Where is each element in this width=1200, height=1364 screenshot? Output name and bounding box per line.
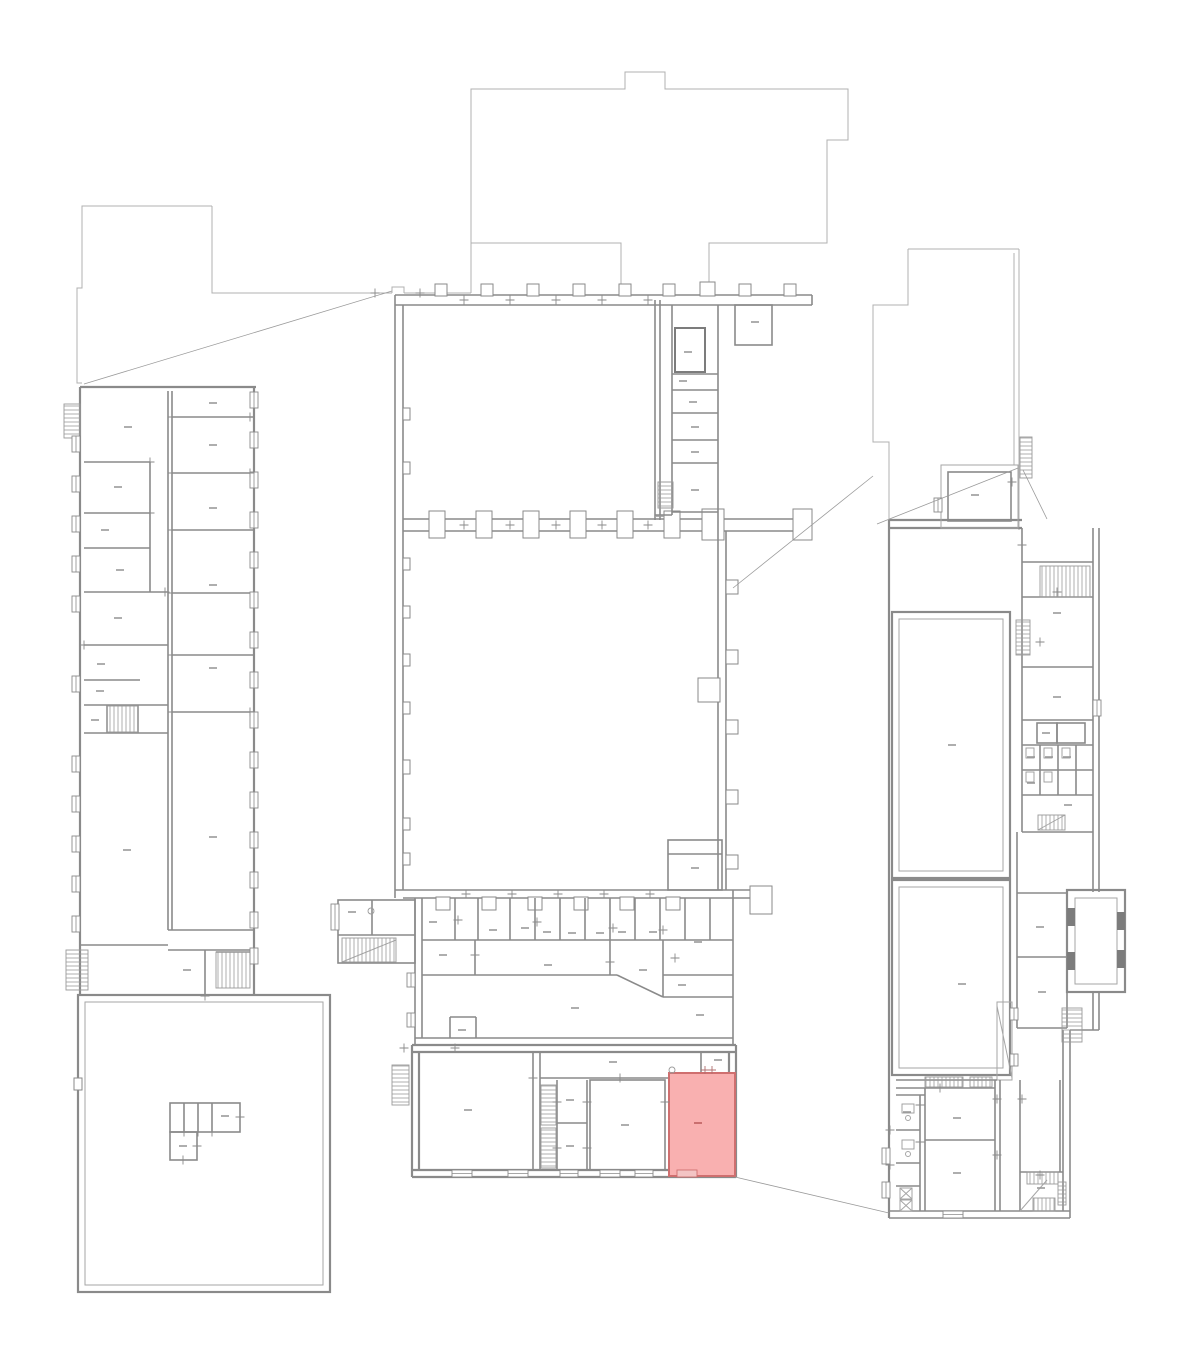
room-label-mark xyxy=(1037,1187,1045,1189)
door-tick xyxy=(168,413,177,422)
room-label-mark xyxy=(221,1115,229,1117)
bottom-building-stair-column xyxy=(557,1080,587,1170)
top-building-outline xyxy=(471,72,848,293)
door-tick xyxy=(180,1128,189,1137)
pier-mark xyxy=(1067,952,1075,970)
detail-room-outer xyxy=(941,465,1018,528)
room-label-mark xyxy=(101,529,109,531)
room-label-mark xyxy=(694,941,702,943)
door-tick xyxy=(168,526,177,535)
room-label-mark xyxy=(116,569,124,571)
room-label-mark xyxy=(691,451,699,453)
room-label-mark xyxy=(571,1007,579,1009)
door-tick xyxy=(600,890,609,899)
door-tick xyxy=(462,890,471,899)
door-tick xyxy=(529,1074,538,1083)
stair-hatch xyxy=(342,938,396,962)
room-label-mark xyxy=(544,964,552,966)
room-label-mark xyxy=(696,1014,704,1016)
door-tick xyxy=(193,1142,202,1151)
room-label-mark xyxy=(1064,804,1072,806)
room-label-mark xyxy=(429,921,437,923)
room-label-mark xyxy=(209,444,217,446)
room-label-mark xyxy=(521,927,529,929)
room-label-mark xyxy=(1036,926,1044,928)
door-tick xyxy=(400,1044,409,1053)
right-big-room-2-outer xyxy=(892,880,1010,1075)
hall-east-pilasters xyxy=(726,580,738,869)
door-tick xyxy=(916,1138,925,1147)
right-wing-small-room-b xyxy=(1057,723,1085,743)
leader-line xyxy=(1023,470,1047,519)
room-label-mark xyxy=(656,515,664,517)
door-circles xyxy=(368,908,675,1073)
door-tick xyxy=(208,1128,217,1137)
door-tick xyxy=(146,458,155,467)
right-wing-lower-column-walls xyxy=(1017,832,1067,1028)
central-building xyxy=(338,282,812,1045)
room-label-mark xyxy=(1038,991,1046,993)
door-tick xyxy=(616,1074,625,1083)
stair-hatch xyxy=(66,950,88,990)
room-label-mark xyxy=(953,1117,961,1119)
room-label-mark xyxy=(123,849,131,851)
stair-hatch xyxy=(64,404,80,438)
door-tick xyxy=(1018,541,1027,550)
room-label-mark xyxy=(209,507,217,509)
room-label-mark xyxy=(609,1061,617,1063)
door-tick xyxy=(1036,638,1045,647)
door-tick xyxy=(506,296,515,305)
room-label-mark xyxy=(464,1109,472,1111)
leader-line xyxy=(733,476,873,588)
door-tick xyxy=(168,651,177,660)
highlighted-room-window xyxy=(677,1170,697,1177)
stair-hatch xyxy=(1062,1008,1082,1042)
detail-room-inner xyxy=(948,472,1011,521)
site-outlines xyxy=(77,72,1019,530)
central-south-band xyxy=(338,890,733,1045)
room-label-mark xyxy=(124,426,132,428)
upper-right-outline xyxy=(873,249,1019,530)
room-label-mark xyxy=(209,836,217,838)
door-tick xyxy=(168,589,177,598)
stair-hatch xyxy=(216,952,250,988)
left-wing-west-room-walls xyxy=(84,462,168,733)
room-label-mark xyxy=(1027,756,1035,758)
central-top-pilasters xyxy=(435,282,796,296)
room-label-mark xyxy=(948,744,956,746)
pier-mark xyxy=(1117,912,1125,930)
door-tick xyxy=(671,954,680,963)
room-label-mark xyxy=(639,969,647,971)
room-label-mark xyxy=(183,969,191,971)
door-tick xyxy=(194,1128,203,1137)
stair-hatch xyxy=(1038,815,1065,830)
right-big-room-2-inner xyxy=(899,887,1003,1068)
door-tick xyxy=(506,521,515,530)
courtyard-cluster-box xyxy=(170,1103,240,1132)
room-label-mark xyxy=(543,931,551,933)
protruding-room-outer xyxy=(1067,890,1125,992)
door-tick xyxy=(916,1101,925,1110)
central-west-wall-notches xyxy=(403,408,410,865)
bottom-right-walls xyxy=(889,1080,1070,1218)
protruding-room-inner xyxy=(1075,898,1117,984)
room-label-mark xyxy=(691,426,699,428)
room-label-mark xyxy=(114,486,122,488)
room-label-mark xyxy=(439,954,447,956)
room-label-mark xyxy=(621,1124,629,1126)
stair-hatch xyxy=(1040,566,1090,597)
room-label-mark xyxy=(684,351,692,353)
door-tick xyxy=(606,958,615,967)
room-label-mark xyxy=(678,984,686,986)
room-label-mark xyxy=(458,1029,466,1031)
central-inner-square-room xyxy=(675,328,705,372)
room-label-mark xyxy=(114,617,122,619)
door-tick xyxy=(598,521,607,530)
leader-line xyxy=(84,291,392,384)
courtyard-square xyxy=(74,995,330,1292)
door-tick xyxy=(552,521,561,530)
door-tick xyxy=(416,289,425,298)
door-tick xyxy=(508,890,517,899)
stair-hatch xyxy=(107,706,138,732)
door-tick xyxy=(471,951,480,960)
room-label-mark xyxy=(179,1145,187,1147)
highlighted-room-group xyxy=(669,1066,735,1177)
pier-mark xyxy=(1067,908,1075,926)
stair-hatch xyxy=(1033,1198,1055,1211)
room-label-mark xyxy=(691,867,699,869)
stair-hatch xyxy=(1016,620,1030,655)
leader-line xyxy=(735,1177,889,1213)
room-label-mark xyxy=(1045,756,1053,758)
courtyard-inner-wall xyxy=(85,1002,323,1285)
room-label-mark xyxy=(1042,732,1050,734)
central-west-wall xyxy=(395,295,403,898)
central-topright-room xyxy=(735,305,772,345)
room-label-mark xyxy=(566,1145,574,1147)
door-tick xyxy=(460,296,469,305)
stair-hatch xyxy=(541,1085,556,1125)
stair-hatch xyxy=(925,1077,963,1087)
elevator-shafts xyxy=(900,1188,912,1211)
room-label-mark xyxy=(489,929,497,931)
room-label-mark xyxy=(689,401,697,403)
left-wing xyxy=(80,387,256,995)
room-label-mark xyxy=(679,380,687,382)
door-tick xyxy=(1018,1095,1027,1104)
room-label-mark xyxy=(958,983,966,985)
door-circle xyxy=(368,908,374,914)
room-label-mark xyxy=(953,1172,961,1174)
room-label-mark xyxy=(209,584,217,586)
room-label-mark xyxy=(971,494,979,496)
door-tick xyxy=(179,1156,188,1165)
room-label-mark xyxy=(91,719,99,721)
door-tick xyxy=(168,708,177,717)
band-diagonal-wall xyxy=(617,975,663,997)
highlighted-room[interactable] xyxy=(669,1073,735,1176)
stair-hatch xyxy=(392,1065,409,1105)
room-label-mark xyxy=(348,911,356,913)
door-tick xyxy=(201,992,210,1001)
door-tick xyxy=(168,469,177,478)
room-label-mark xyxy=(1063,756,1071,758)
hall-southeast-room xyxy=(668,840,722,890)
door-tick xyxy=(236,1113,245,1122)
room-label-mark xyxy=(691,489,699,491)
room-label-mark xyxy=(1053,612,1061,614)
hall-east-recess xyxy=(698,678,720,702)
door-tick xyxy=(644,521,653,530)
floor-plan-canvas xyxy=(0,0,1200,1364)
courtyard-wall-bump xyxy=(74,1078,82,1090)
central-middle-piers xyxy=(429,509,812,540)
room-label-mark xyxy=(903,1111,911,1113)
door-tick xyxy=(552,296,561,305)
room-label-marks xyxy=(91,321,1072,1189)
room-label-mark xyxy=(649,931,657,933)
room-label-mark xyxy=(209,402,217,404)
courtyard-outer-wall xyxy=(78,995,330,1292)
stair-hatch xyxy=(1027,1172,1058,1184)
room-label-mark xyxy=(596,932,604,934)
room-label-mark xyxy=(1027,782,1035,784)
room-label-mark xyxy=(566,1099,574,1101)
door-tick xyxy=(644,296,653,305)
door-tick xyxy=(533,918,542,927)
stair-hatch xyxy=(970,1077,992,1087)
wc-fixtures xyxy=(902,748,1070,1157)
door-tick xyxy=(886,1126,895,1135)
door-tick xyxy=(460,521,469,530)
pier-mark xyxy=(1117,950,1125,968)
room-label-mark xyxy=(751,321,759,323)
highlighted-room-label-mark xyxy=(694,1122,702,1124)
door-tick xyxy=(646,890,655,899)
door-tick xyxy=(554,890,563,899)
stair-hatch xyxy=(658,482,673,508)
room-label-mark xyxy=(97,663,105,665)
stair-hatch xyxy=(1020,437,1032,478)
door-tick xyxy=(598,296,607,305)
stair-hatch xyxy=(1058,1182,1066,1205)
room-label-mark xyxy=(1053,696,1061,698)
door-tick xyxy=(1008,478,1017,487)
floor-plan-drawing xyxy=(0,0,1200,1364)
room-label-mark xyxy=(618,931,626,933)
room-label-mark xyxy=(96,690,104,692)
left-wing-corridor-walls xyxy=(168,391,172,930)
door-tick xyxy=(146,509,155,518)
room-label-mark xyxy=(714,1059,722,1061)
hall-east-wall xyxy=(718,520,726,890)
room-label-mark xyxy=(209,667,217,669)
room-label-mark xyxy=(568,932,576,934)
